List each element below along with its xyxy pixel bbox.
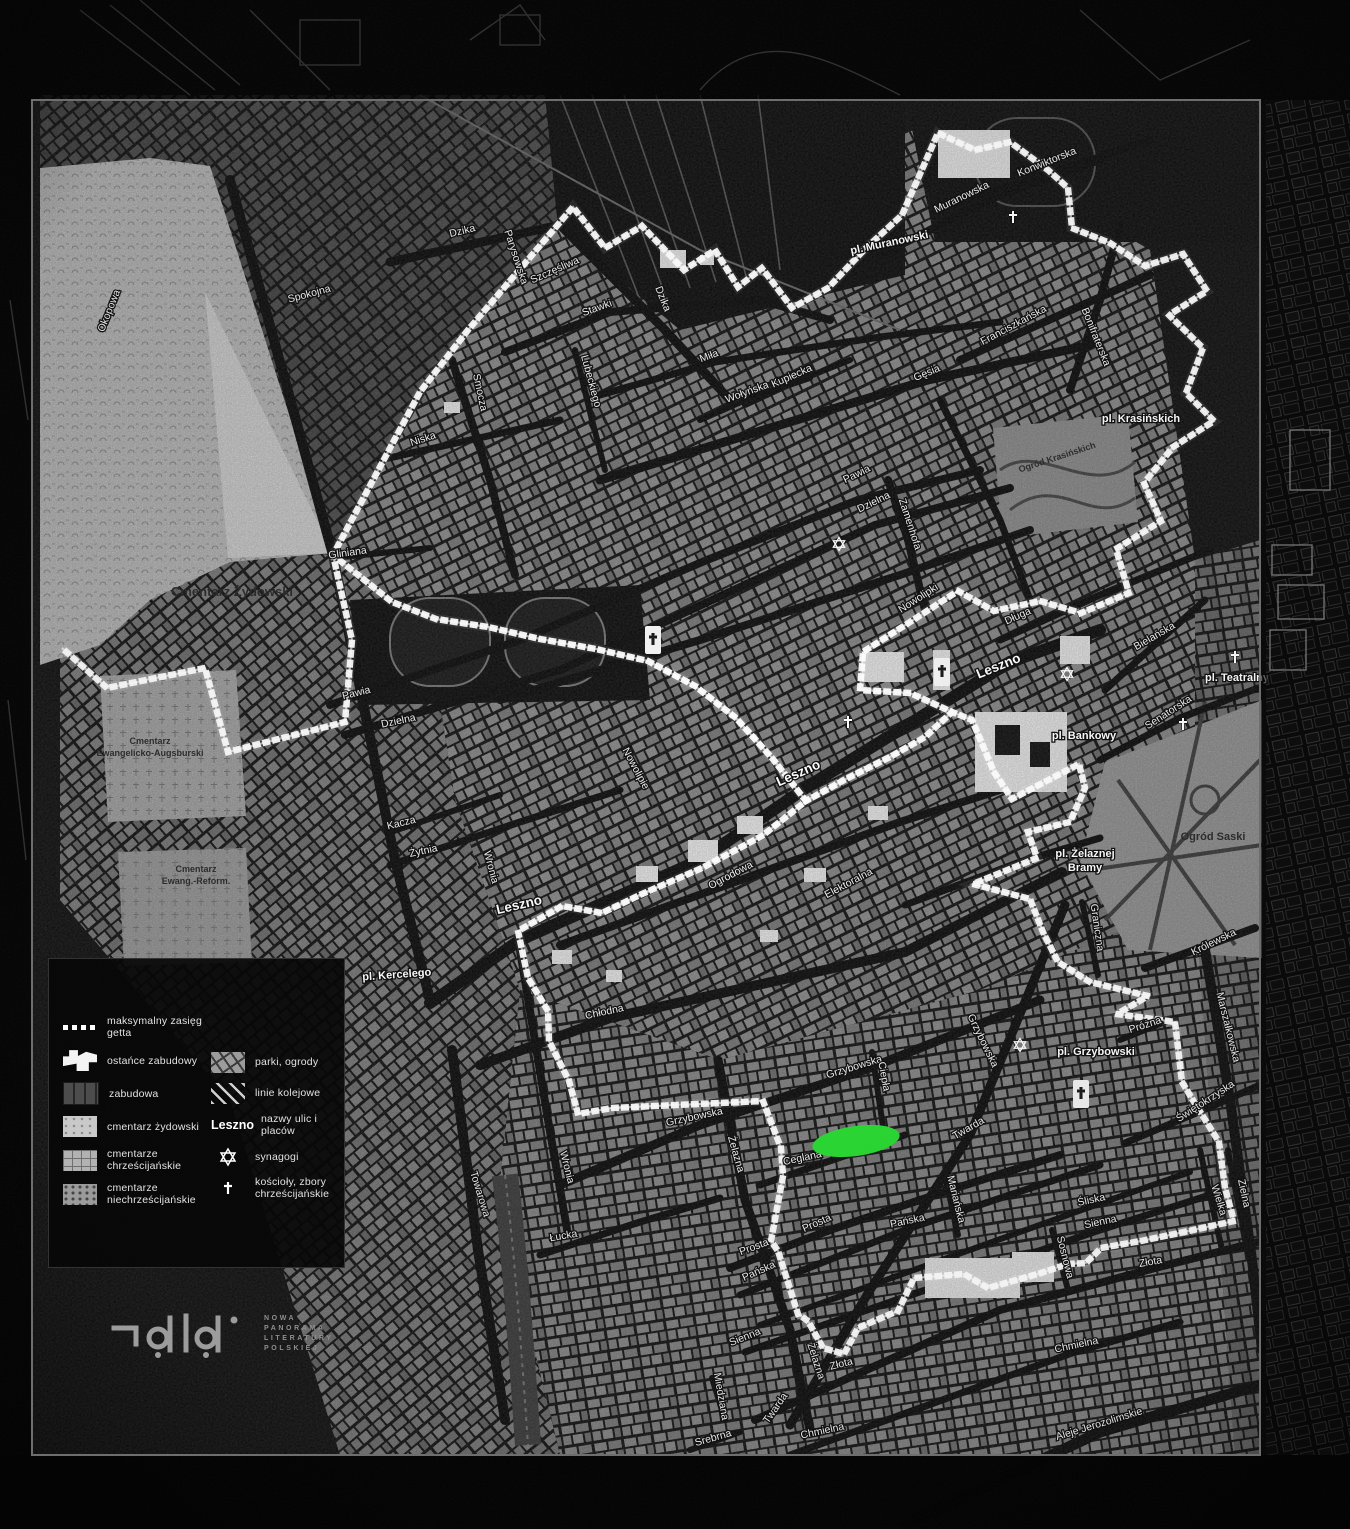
legend-panel: maksymalny zasięg gettaostańce zabudowyz… [48,958,345,1268]
legend-item: kościoły, zbory chrześcijańskie [211,1176,341,1200]
legend-swatch-cem-non [63,1184,97,1205]
legend-item: ostańce zabudowy [63,1049,221,1072]
legend-label: parki, ogrody [255,1056,318,1068]
legend-label: maksymalny zasięg getta [107,1015,221,1039]
legend-swatch-rail [211,1083,245,1104]
legend-column-1: maksymalny zasięg gettaostańce zabudowyz… [63,1015,221,1206]
warsaw-ghetto-map-page: OkopowaSpokojnaDzikaParysowskaSzczęśliwa… [0,0,1350,1529]
legend-swatch-block [63,1082,99,1105]
legend-item: Lesznonazwy ulic i placów [211,1113,341,1137]
logo-line: PANORAMA [264,1324,334,1334]
legend-label: cmentarze chrześcijańskie [107,1148,221,1172]
legend-item: cmentarze chrześcijańskie [63,1148,221,1172]
legend-swatch-cem-jew [63,1116,97,1137]
legend-swatch-text: Leszno [211,1115,251,1136]
legend-item: cmentarze niechrześcijańskie [63,1182,221,1206]
legend-swatch-star [211,1146,245,1167]
legend-column-2: parki, ogrodylinie kolejoweLesznonazwy u… [211,1051,341,1200]
legend-swatch-park [211,1052,245,1073]
legend-label: zabudowa [109,1088,158,1100]
nplp-logo-text: NOWA PANORAMA LITERATURY POLSKIEJ [264,1308,334,1354]
legend-swatch-cross [211,1178,245,1199]
legend-label: ostańce zabudowy [107,1055,197,1067]
legend-item: maksymalny zasięg getta [63,1015,221,1039]
logo-line: NOWA [264,1314,334,1324]
legend-label: nazwy ulic i placów [261,1113,341,1137]
nplp-logo-mark [110,1308,250,1364]
legend-item: cmentarz żydowski [63,1115,221,1138]
vignette [0,0,1350,1529]
legend-item: linie kolejowe [211,1082,341,1105]
legend-label: synagogi [255,1151,299,1163]
legend-swatch-ruin [63,1050,97,1071]
legend-swatch-dash [63,1025,97,1030]
legend-label: linie kolejowe [255,1087,320,1099]
map-canvas: OkopowaSpokojnaDzikaParysowskaSzczęśliwa… [0,0,1350,1529]
legend-label: cmentarz żydowski [107,1121,199,1133]
legend-item: synagogi [211,1145,341,1168]
legend-swatch-cem-chr [63,1150,97,1171]
logo-line: POLSKIEJ [264,1344,334,1354]
legend-item: parki, ogrody [211,1051,341,1074]
nplp-logo: NOWA PANORAMA LITERATURY POLSKIEJ [110,1308,334,1364]
legend-item: zabudowa [63,1082,221,1105]
legend-label: cmentarze niechrześcijańskie [107,1182,221,1206]
legend-label: kościoły, zbory chrześcijańskie [255,1176,341,1200]
logo-line: LITERATURY [264,1334,334,1344]
